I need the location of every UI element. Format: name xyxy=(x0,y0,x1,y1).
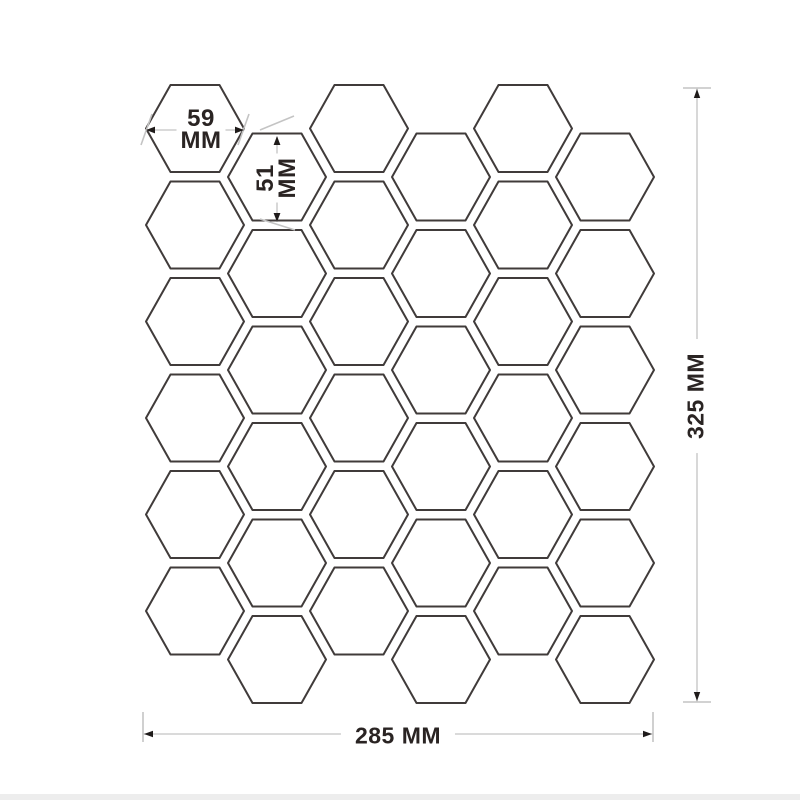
hexagon-tile xyxy=(392,423,490,510)
dimension-arrow-up xyxy=(274,136,281,145)
hexagon-tile xyxy=(228,520,326,607)
hexagon-tile xyxy=(146,375,244,462)
hexagon-tile xyxy=(146,182,244,269)
hexagon-grid xyxy=(146,85,654,703)
hexagon-tile xyxy=(474,568,572,655)
hex-width-dimension-label: 59 MM xyxy=(177,107,226,153)
hexagon-tile xyxy=(556,230,654,317)
hexagon-tile xyxy=(310,85,408,172)
dimension-arrow-up xyxy=(694,89,700,98)
hexagon-tile xyxy=(556,327,654,414)
hexagon-tile xyxy=(556,616,654,703)
hexagon-tile xyxy=(474,85,572,172)
hexagon-tile xyxy=(392,230,490,317)
hexagon-tile xyxy=(474,471,572,558)
hexagon-tile xyxy=(310,182,408,269)
hexagon-tile xyxy=(310,471,408,558)
hex-width-unit: MM xyxy=(181,130,222,152)
sheet-height-dimension-label: 325 MM xyxy=(681,339,712,453)
hexagon-tile xyxy=(556,134,654,221)
hexagon-tile xyxy=(392,134,490,221)
hexagon-tile xyxy=(556,423,654,510)
dimension-arrow-left xyxy=(144,731,153,737)
hexagon-tile xyxy=(392,327,490,414)
hexagon-tile xyxy=(228,423,326,510)
sheet-width-dimension-label: 285 MM xyxy=(341,721,455,752)
dimension-arrow-down xyxy=(694,692,700,701)
hexagon-tile xyxy=(310,278,408,365)
hexagon-tile xyxy=(228,230,326,317)
hexagon-tile xyxy=(310,375,408,462)
hexagon-tile xyxy=(392,616,490,703)
hexagon-tile xyxy=(392,520,490,607)
dimension-arrow-right xyxy=(643,731,652,737)
hexagon-tile xyxy=(474,278,572,365)
hexagon-tile xyxy=(474,182,572,269)
hex-height-unit: MM xyxy=(277,158,299,199)
hexagon-tile xyxy=(146,568,244,655)
tile-dimension-drawing: 59 MM 51 MM 325 MM 285 MM xyxy=(0,0,800,800)
hexagon-tile xyxy=(474,375,572,462)
hexagon-tile xyxy=(228,616,326,703)
hexagon-tile xyxy=(146,278,244,365)
extension-tick xyxy=(260,116,294,130)
hexagon-tile xyxy=(228,327,326,414)
page-edge-band xyxy=(0,794,800,800)
hexagon-tile xyxy=(556,520,654,607)
hex-height-dimension-label: 51 MM xyxy=(254,154,300,203)
hexagon-tile xyxy=(310,568,408,655)
hexagon-tile xyxy=(146,471,244,558)
